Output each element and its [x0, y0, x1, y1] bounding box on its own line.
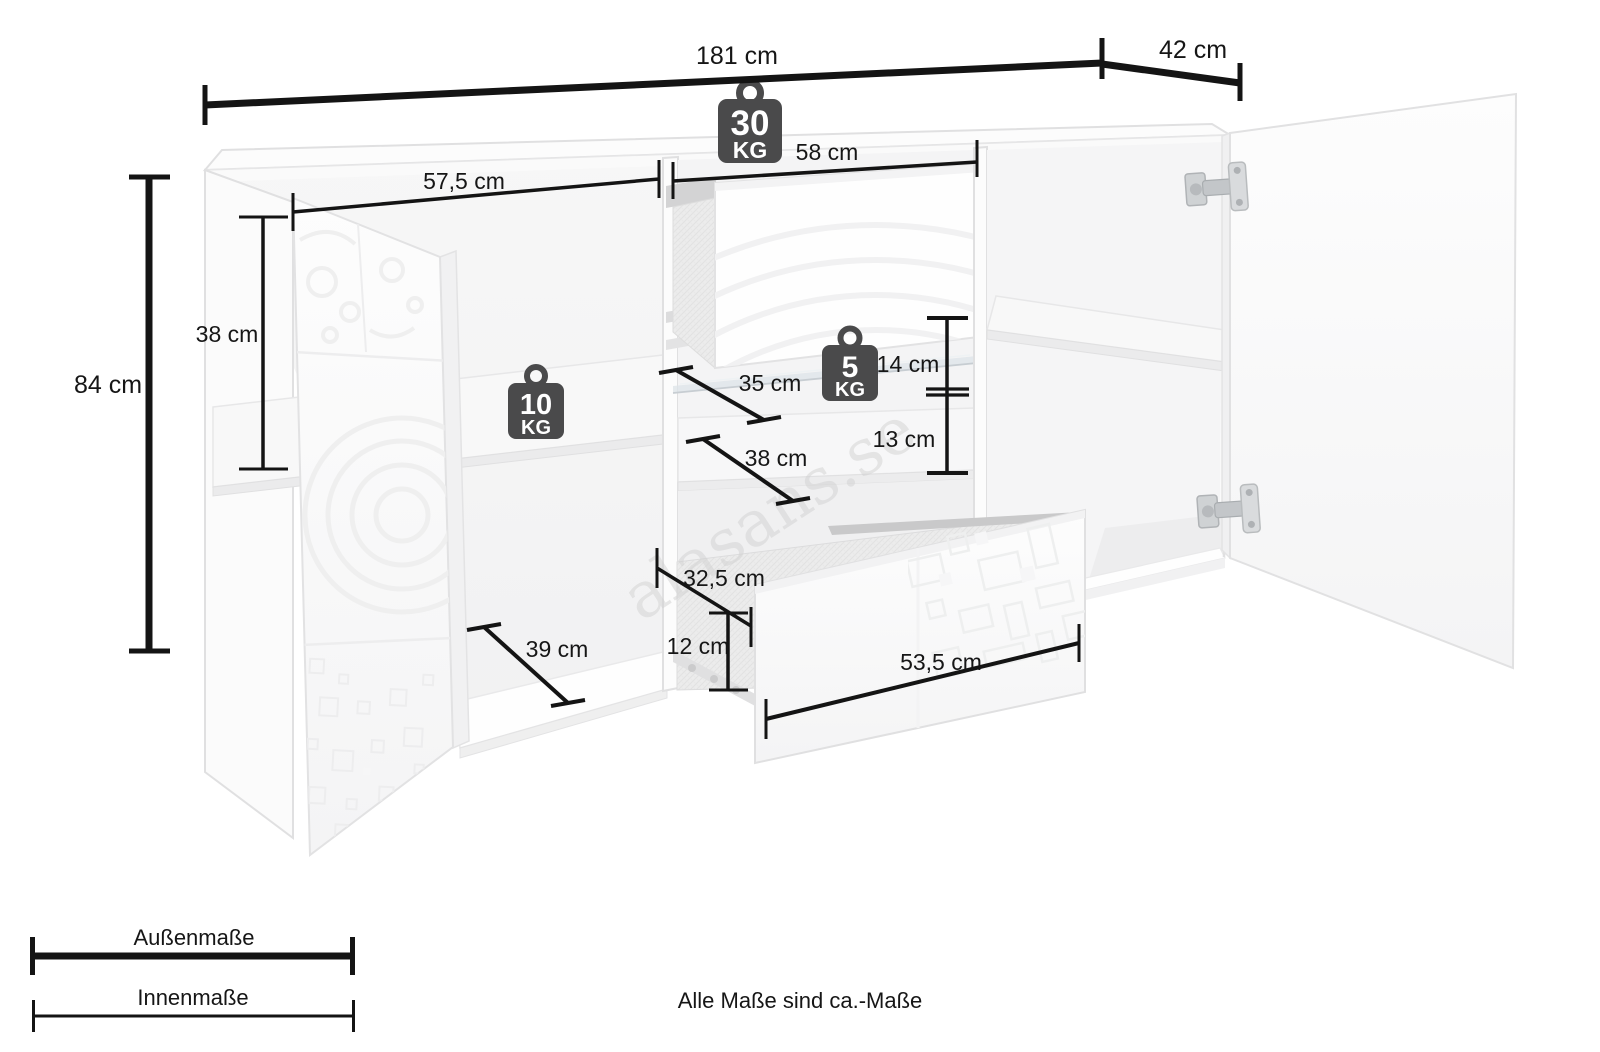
svg-text:38 cm: 38 cm — [745, 445, 808, 471]
load-badge-top: 30 KG — [718, 83, 782, 164]
svg-text:38 cm: 38 cm — [196, 321, 259, 347]
svg-text:181 cm: 181 cm — [696, 42, 778, 70]
dimension-total-height: 84 cm — [74, 177, 170, 651]
svg-text:53,5 cm: 53,5 cm — [900, 649, 982, 675]
svg-text:58 cm: 58 cm — [796, 139, 859, 165]
legend: Außenmaße Innenmaße — [30, 925, 355, 1032]
right-door — [1222, 94, 1516, 668]
svg-text:12 cm: 12 cm — [667, 633, 730, 659]
svg-text:32,5 cm: 32,5 cm — [683, 565, 765, 591]
footnote: Alle Maße sind ca.-Maße — [678, 988, 923, 1013]
left-side-panel — [205, 170, 293, 838]
svg-text:39 cm: 39 cm — [526, 636, 589, 662]
svg-text:42 cm: 42 cm — [1159, 36, 1227, 64]
svg-text:KG: KG — [733, 137, 768, 163]
dimension-diagram: alasans.se 30 KG 10 KG 5 KG 181 cm 42 cm… — [0, 0, 1600, 1052]
legend-outer-label: Außenmaße — [133, 925, 254, 950]
dimension-total-width: 181 cm — [205, 38, 1102, 125]
dimension-total-depth: 42 cm — [1102, 36, 1240, 101]
svg-text:13 cm: 13 cm — [873, 426, 936, 452]
legend-inner-label: Innenmaße — [137, 985, 248, 1010]
svg-text:14 cm: 14 cm — [877, 351, 940, 377]
svg-text:57,5 cm: 57,5 cm — [423, 168, 505, 194]
sideboard-illustration — [205, 94, 1516, 1052]
svg-text:KG: KG — [835, 379, 865, 401]
svg-text:KG: KG — [521, 417, 551, 439]
svg-text:35 cm: 35 cm — [739, 370, 802, 396]
svg-text:84 cm: 84 cm — [74, 371, 142, 399]
